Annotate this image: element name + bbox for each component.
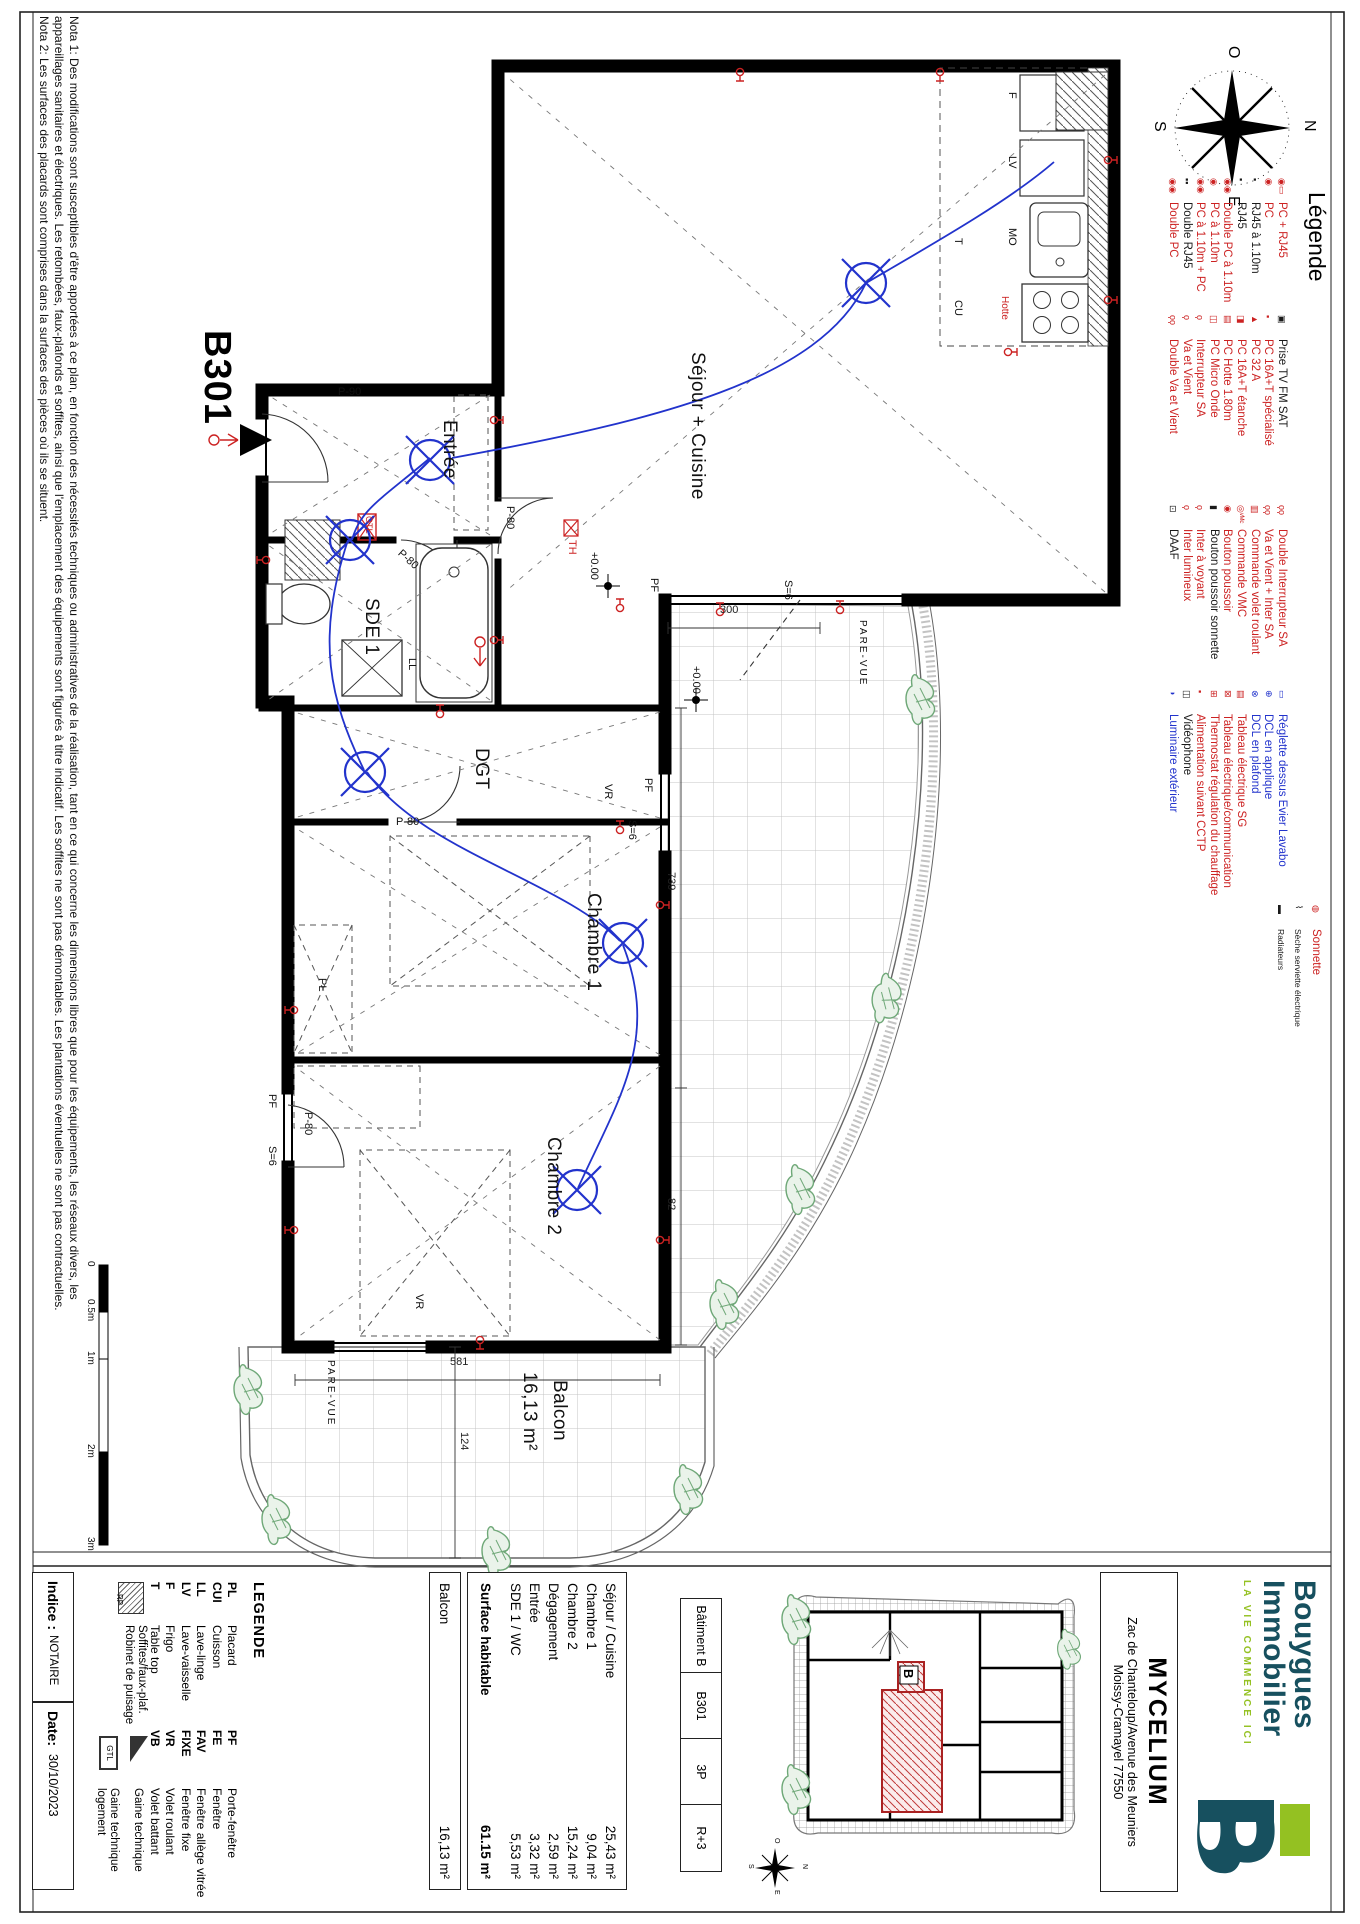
legend-symbol-icon: ◫ [1208,315,1219,339]
legend-item: ϙInterrupteur SA [1194,315,1207,446]
legend-item: ◍Sonnette [1309,905,1322,1027]
legend-item: ▪RJ45 à 1.10m [1248,178,1261,302]
legend-symbol-icon: ϙϙ [1168,315,1178,339]
gtl-icon: GTL [99,1736,118,1770]
table-row: Séjour / Cuisine25,43 m² [601,1583,620,1879]
keyplan-compass-n: N [801,1864,808,1869]
legend-item: ◉Bouton poussoir [1221,505,1234,659]
room-balcon: Balcon [548,1380,570,1441]
screenshot-root: Nota 1: Des modifications sont susceptib… [0,0,1360,1924]
legend-item: ϙϙDouble Interrupteur SA [1275,505,1288,659]
legend-item: ϙϙVa et Vient + Inter SA [1262,505,1275,659]
legend-symbol-icon: ▪ [1250,178,1260,202]
notes-block: Nota 1: Des modifications sont susceptib… [36,16,81,1311]
door-p80: P-80 [396,816,419,828]
brand-name-line2: Immobilier [1258,1580,1289,1747]
legend-symbol-icon: ◉▭ [1276,178,1287,202]
legend-item: ◨PC 16A+T étanche [1235,315,1248,446]
legende-row: LVLave-vaisselle [178,1582,194,1701]
legend-column-5: ◍Sonnette ⌇Sèche serviette électrique ▬R… [1274,905,1322,1027]
legend-symbol-icon: ⌇ [1293,905,1304,929]
appliance-mo: MO [1006,228,1018,246]
table-row: Chambre 19,04 m² [582,1583,601,1879]
legend-symbol-icon: ▥ [1249,505,1260,529]
legend-item: ▲PC 32 A [1248,315,1261,446]
legende-row: FAVFenêtre allège vitrée [194,1730,210,1897]
legend-item: ◉◉PC à 1.10m + PC [1194,178,1207,302]
door-p80: P-80 [504,506,516,529]
legend-column-1: ◉▭PC + RJ45 ◉PC ▪RJ45 à 1.10m ▪RJ45 ◉◉Do… [1167,178,1288,302]
legend-item: ▪▪Double RJ45 [1180,178,1193,302]
win-pf: PF [648,578,660,592]
win-s6: S=6 [782,580,794,600]
win-s6: S=6 [626,820,638,840]
key-plan [755,1595,1080,1888]
legend-symbol-icon: ϙ [1182,505,1192,529]
legend-item: ⊞Thermostat régulation du chauffage [1207,690,1220,895]
appliance-ll: LL [406,658,418,670]
cell-batiment: Bâtiment B [680,1598,722,1674]
legend-item: ▪Alimentation suivant CCTP [1194,690,1207,895]
date-box: Date: 30/10/2023 [32,1702,74,1890]
legend-item: ⊕DCL en applique [1262,690,1275,895]
dim-581: 581 [450,1356,468,1368]
legende-row: TTable top [147,1582,163,1701]
door-p80: P-80 [302,1112,314,1135]
legend-item: ϙInter lumineux [1180,505,1193,659]
scale-1: 1m [85,1351,96,1365]
legend-item: ◉▭PC + RJ45 [1275,178,1288,302]
legend-item: ▤Tableau électrique SG [1235,690,1248,895]
room-dgt: DGT [470,748,492,790]
legend-symbol-icon: ◍ [1310,905,1321,929]
legend-symbol-icon: ϙ [1182,315,1192,339]
table-row: Chambre 215,24 m² [563,1583,582,1879]
legende-row: VRVolet roulant [163,1730,179,1897]
legend-symbol-icon: ◉ [1263,178,1274,202]
level-marker: +0.00 [690,666,702,694]
compass-n: N [1300,120,1318,132]
soffites-label: Soffites/faux-plaf. Robinet de puisage [122,1625,148,1724]
legende-row: VBVolet battant [147,1730,163,1897]
legende-row: PFPorte-fenêtre [225,1730,241,1897]
legend-symbol-icon: ◎ᵛᴹᶜ [1235,505,1246,529]
legend-item: ◉PC [1262,178,1275,302]
brand-tagline: LA VIE COMMENCE ICI [1241,1580,1252,1747]
pare-vue-label: PARE-VUE [857,620,868,686]
legend-symbol-icon: ◉ [1222,505,1233,529]
legend-item: ▬Radiateurs [1274,905,1287,1027]
cell-etage: R+3 [680,1804,722,1872]
win-pf: PF [642,778,654,792]
legend-item: ◑Luminaire extérieur [1167,690,1180,895]
legend-item: ▭Réglette dessus Evier Lavabo [1275,690,1288,895]
dim-739: 739 [665,872,677,890]
appliance-f: F [1006,92,1018,99]
legend-item: ◫PC Micro Onde [1207,315,1220,446]
compass-s: S [1150,121,1168,132]
balcon-row: Balcon16,13 m² [429,1572,461,1890]
room-sejour-cuisine: Séjour + Cuisine [686,352,708,500]
legend-symbol-icon: ϙ [1195,315,1205,339]
gtl-label: GTL [364,516,374,534]
legend-item: ◫Vidéophone [1180,690,1193,895]
bouygues-logo-mark [1197,1800,1310,1873]
legend-column-3: ϙϙDouble Interrupteur SA ϙϙVa et Vient +… [1167,505,1288,659]
legend-symbol-icon: ◉◉ [1222,178,1233,202]
keyplan-compass-s: S [747,1864,754,1869]
legend-symbol-icon: ◨ [1235,315,1246,339]
project-name: MYCELIUM [1142,1573,1171,1891]
thermostat-label: TH [566,540,578,555]
legend-symbol-icon: ▪ [1195,690,1205,714]
legende-title: LEGENDE [250,1582,266,1659]
legend-symbol-icon: ϙ [1195,505,1205,529]
appliance-hotte: Hotte [999,296,1010,320]
indice-box: Indice : NOTAIRE [32,1572,74,1702]
legend-symbol-icon: ▪▪ [1182,178,1192,202]
legend-symbol-icon: ⊠ [1222,690,1233,714]
project-address2: Moissy-Cramayel 77550 [1111,1573,1125,1891]
legend-symbol-icon: ▣ [1276,315,1287,339]
scale-2: 2m [85,1444,96,1458]
appliance-cu: CU [952,300,964,316]
legend-item: ⌇Sèche serviette électrique [1292,905,1305,1027]
legend-symbol-icon: ◉◉ [1195,178,1206,202]
legend-item: ▤PC Hotte 1.80m [1221,315,1234,446]
room-sde1: SDE 1 [360,598,382,655]
legend-symbol-icon: ϙϙ [1277,505,1287,529]
legend-symbol-icon: ⊕ [1263,690,1274,714]
table-row: Dégagement2,59 m² [544,1583,563,1879]
drawing-sheet: Nota 1: Des modifications sont susceptib… [0,0,1360,1924]
legend-symbol-icon: ▤ [1235,690,1246,714]
win-vr: VR [413,1294,425,1309]
legend-item: ϙVa et Vient [1180,315,1193,446]
table-row: Entrée3,32 m² [525,1583,544,1879]
dim-124: 124 [458,1432,470,1450]
legende-col2: PFPorte-fenêtre FEFenêtre FAVFenêtre all… [147,1730,240,1897]
dim-300: 300 [720,604,738,616]
legend-item: ◎ᵛᴹᶜCommande VMC [1235,505,1248,659]
appliance-t: T [952,238,964,245]
cell-type: 3P [680,1738,722,1806]
closet-pl: PL [316,978,328,991]
dim-82: 82 [665,1198,677,1210]
scale-0: 0 [85,1261,96,1267]
compass-o: O [1224,46,1242,58]
legend-item: ▪RJ45 [1235,178,1248,302]
note-line: appareillages sanitaires et électriques.… [51,16,66,1311]
legend-symbol-icon: ◫ [1181,690,1192,714]
door-p90: P-90 [338,386,361,398]
legend-item: ▥Commande volet roulant [1248,505,1261,659]
win-vr: VR [602,784,614,799]
legend-item: ⊗DCL en plafond [1248,690,1261,895]
legend-symbol-icon: ◉◉ [1167,178,1178,202]
room-balcon-area: 16,13 m² [518,1372,540,1451]
legend-symbol-icon: ▭ [1276,690,1287,714]
legend-item: ▣Prise TV FM SAT [1275,315,1288,446]
note-line: Nota 1: Des modifications sont susceptib… [66,16,81,1311]
legend-item: ◉◉Double PC [1167,178,1180,302]
legend-column-4: ▭Réglette dessus Evier Lavabo ⊕DCL en ap… [1167,690,1288,895]
bouygues-logo: Bouygues Immobilier LA VIE COMMENCE ICI [1241,1580,1320,1747]
brand-name-line1: Bouygues [1289,1580,1320,1747]
legend-item: ◉◉Double PC à 1.10m [1221,178,1234,302]
keyplan-compass-o: O [773,1838,780,1843]
legende-row: LLLave-linge [194,1582,210,1701]
legend-symbol-icon: ⊞ [1208,690,1219,714]
pare-vue-label: PARE-VUE [325,1360,336,1426]
legend-symbol-icon: ⊡ [1167,505,1178,529]
gaine-logement-label: Gaine technique logement [94,1788,120,1872]
legend-item: ϙϙDouble Va et Vient [1167,315,1180,446]
unit-label: B301 [195,330,238,425]
legend-item: ◉PC à 1.10m [1207,178,1220,302]
legend-symbol-icon: ◑ [1168,690,1178,714]
key-plan-compass-icon [755,1848,795,1888]
legend-item: ⊠Tableau électrique/communication [1221,690,1234,895]
room-chambre1: Chambre 1 [582,893,604,992]
cell-lot: B301 [680,1672,722,1740]
legend-symbol-icon: ▪ [1236,178,1246,202]
areas-table: Séjour / Cuisine25,43 m² Chambre 19,04 m… [467,1572,627,1890]
legend-column-2: ▣Prise TV FM SAT ▪PC 16A+T spécialisé ▲P… [1167,315,1288,446]
room-entree: Entrée [438,420,460,479]
legend-symbol-icon: ▬ [1276,905,1286,929]
legende-row: PLPlacard [225,1582,241,1701]
win-s6: S=6 [266,1146,278,1166]
table-row: Balcon16,13 m² [430,1583,460,1879]
compass-rose-icon [1174,70,1290,186]
note-line: Nota 2: Les surfaces des placards sont c… [36,16,51,1311]
keyplan-compass-e: E [773,1890,780,1895]
legend-symbol-icon: ▤ [1222,315,1233,339]
legend-symbol-icon: ▪ [1263,315,1273,339]
legend-symbol-icon: ▲ [1250,315,1260,339]
legende-row: CUICuisson [209,1582,225,1701]
legend-item: ⊡DAAF [1167,505,1180,659]
win-pf: PF [266,1094,278,1108]
appliance-lv: LV [1006,156,1018,169]
project-box: MYCELIUM Zac de Chanteloup/Avenue des Me… [1100,1572,1178,1892]
legend-item: ▪PC 16A+T spécialisé [1262,315,1275,446]
room-chambre2: Chambre 2 [542,1137,564,1236]
legende-row: FFrigo [163,1582,179,1701]
level-marker: +0.00 [588,552,600,580]
gaine-triangle-icon [130,1736,148,1762]
legend-title: Légende [1303,192,1330,282]
legend-symbol-icon: ⊗ [1249,690,1260,714]
table-total-row: Surface habitable61.15 m² [476,1583,495,1879]
scale-3: 3m [85,1537,96,1551]
legende-row: FEFenêtre [209,1730,225,1897]
rp-label: RP [115,1594,124,1605]
table-row: SDE 1 / WC5,53 m² [506,1583,525,1879]
project-address1: Zac de Chanteloup/Avenue des Meuniers [1125,1573,1139,1891]
legend-symbol-icon: ▮ [1208,505,1219,529]
legend-symbol-icon: ϙϙ [1263,505,1273,529]
legend-item: ϙInter à voyant [1194,505,1207,659]
legend-symbol-icon: ◉ [1208,178,1219,202]
legend-item: ▮Bouton poussoir sonnette [1207,505,1220,659]
keyplan-b-label: B [901,1669,916,1678]
gaine-label: Gaine technique [132,1788,144,1872]
scale-05: 0.5m [85,1299,96,1321]
legende-col1: PLPlacard CUICuisson LLLave-linge LVLave… [147,1582,240,1701]
legende-row: FIXEFenêtre fixe [178,1730,194,1897]
